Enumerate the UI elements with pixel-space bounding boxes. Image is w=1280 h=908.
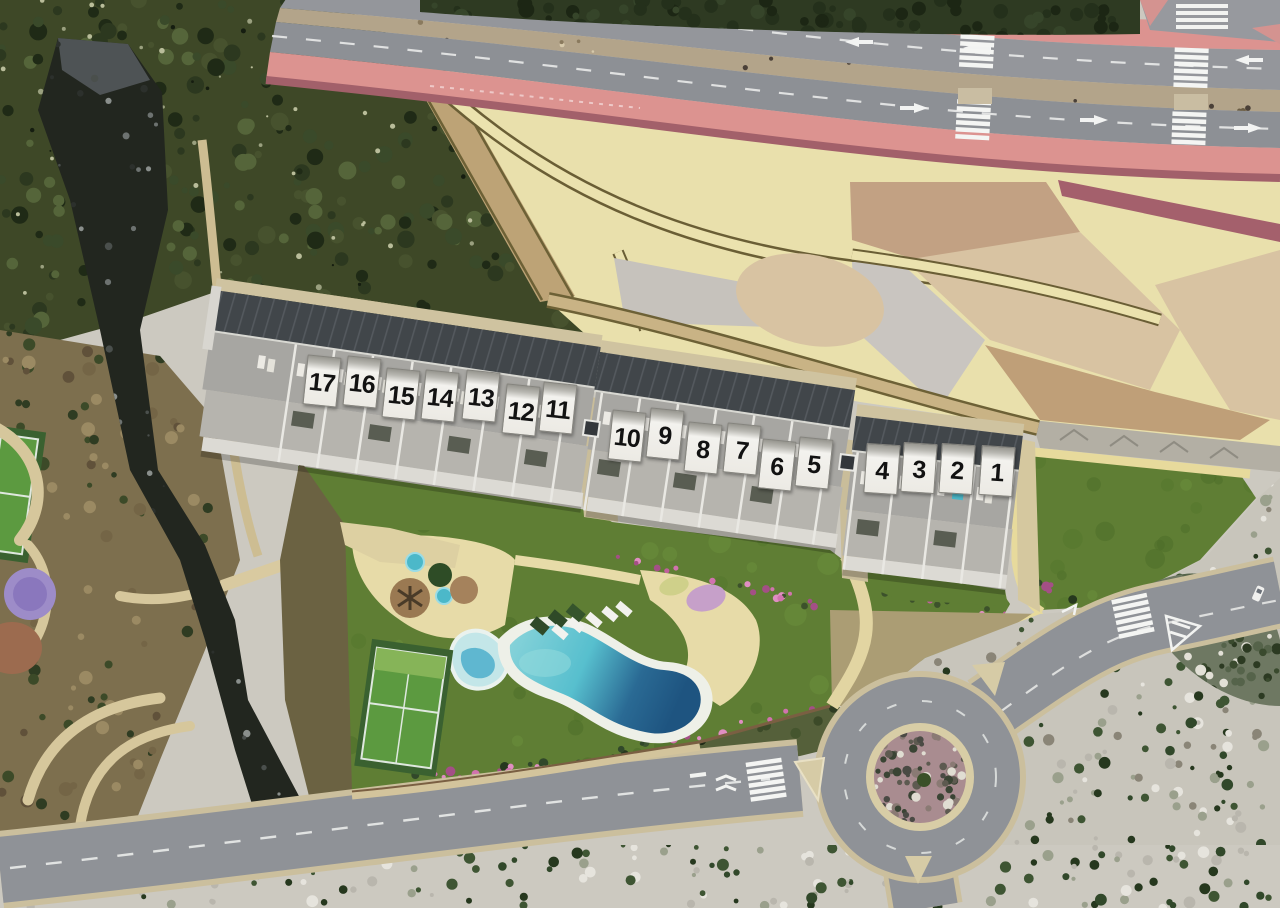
vegetation-dot — [189, 187, 199, 197]
vegetation-dot — [187, 76, 204, 93]
vegetation-dot — [50, 157, 54, 161]
vegetation-dot — [817, 553, 839, 575]
unit-plate-7[interactable]: 7 — [722, 422, 761, 475]
vegetation-dot — [339, 885, 348, 894]
vegetation-dot — [734, 899, 739, 904]
vegetation-dot — [875, 769, 880, 774]
vegetation-dot — [616, 555, 620, 559]
vegetation-dot — [258, 226, 276, 244]
vegetation-dot — [1260, 804, 1265, 809]
vegetation-dot — [1173, 802, 1181, 810]
vegetation-dot — [1265, 895, 1271, 901]
vegetation-dot — [672, 7, 679, 14]
vegetation-dot — [1031, 859, 1037, 865]
vegetation-dot — [1151, 784, 1159, 792]
vegetation-dot — [995, 884, 1006, 895]
vegetation-dot — [23, 291, 27, 295]
vegetation-dot — [1219, 679, 1228, 688]
vegetation-dot — [358, 283, 361, 286]
vegetation-dot — [303, 129, 317, 143]
vegetation-dot — [1219, 664, 1224, 669]
vegetation-dot — [63, 513, 70, 520]
vegetation-dot — [1100, 689, 1109, 698]
vegetation-dot — [147, 470, 153, 476]
unit-plate-17[interactable]: 17 — [302, 354, 341, 407]
vegetation-dot — [690, 859, 696, 865]
vegetation-dot — [626, 875, 636, 885]
vegetation-dot — [427, 260, 436, 269]
vegetation-dot — [738, 583, 743, 588]
vegetation-dot — [245, 241, 259, 255]
vegetation-dot — [94, 355, 103, 364]
vegetation-dot — [89, 453, 97, 461]
vegetation-dot — [70, 782, 77, 789]
vegetation-dot — [925, 805, 931, 811]
vegetation-dot — [230, 254, 242, 266]
vegetation-dot — [169, 261, 183, 275]
vegetation-dot — [1095, 894, 1107, 906]
vegetation-dot — [1143, 855, 1153, 865]
unit-plate-5[interactable]: 5 — [794, 436, 833, 489]
vegetation-dot — [512, 735, 523, 746]
vegetation-dot — [445, 228, 462, 245]
vegetation-dot — [1199, 883, 1210, 894]
vegetation-dot — [22, 356, 36, 370]
vegetation-dot — [1087, 477, 1101, 491]
vegetation-dot — [1259, 649, 1267, 657]
vegetation-dot — [88, 424, 95, 431]
unit-plate-11[interactable]: 11 — [538, 381, 577, 434]
vegetation-dot — [277, 792, 280, 795]
vegetation-dot — [131, 226, 136, 231]
vegetation-dot — [141, 641, 147, 647]
vegetation-dot — [1238, 848, 1244, 854]
vegetation-dot — [163, 485, 165, 487]
vegetation-dot — [709, 863, 714, 868]
unit-plate-2[interactable]: 2 — [938, 443, 975, 495]
vegetation-dot — [1247, 672, 1256, 681]
vegetation-dot — [1198, 846, 1210, 858]
vegetation-dot — [361, 223, 364, 226]
vegetation-dot — [224, 45, 241, 62]
vegetation-dot — [1095, 753, 1102, 760]
vegetation-dot — [934, 658, 942, 666]
vegetation-dot — [947, 767, 956, 776]
vegetation-dot — [388, 243, 393, 248]
vegetation-dot — [224, 182, 230, 188]
vegetation-dot — [63, 371, 75, 383]
vegetation-dot — [203, 503, 213, 513]
vegetation-dot — [191, 80, 194, 83]
vegetation-dot — [1128, 795, 1133, 800]
vegetation-dot — [897, 21, 904, 28]
vegetation-dot — [100, 4, 104, 8]
vegetation-dot — [77, 298, 85, 306]
vegetation-dot — [310, 249, 317, 256]
vegetation-dot — [747, 562, 758, 573]
vegetation-dot — [819, 14, 827, 22]
vegetation-dot — [427, 113, 434, 120]
vegetation-dot — [105, 661, 113, 669]
vegetation-dot — [174, 796, 184, 806]
unit-plate-8[interactable]: 8 — [683, 421, 722, 474]
vegetation-dot — [700, 890, 706, 896]
unit-plate-1[interactable]: 1 — [978, 445, 1015, 497]
vegetation-dot — [33, 54, 44, 65]
vegetation-dot — [416, 887, 421, 892]
vegetation-dot — [902, 766, 911, 775]
vegetation-dot — [1237, 667, 1245, 675]
vegetation-dot — [1025, 820, 1035, 830]
vegetation-dot — [430, 893, 434, 897]
vegetation-dot — [154, 123, 158, 127]
vegetation-dot — [640, 741, 644, 745]
vegetation-dot — [1245, 105, 1251, 111]
vegetation-dot — [149, 747, 157, 755]
vegetation-dot — [1180, 860, 1189, 869]
unit-plate-4[interactable]: 4 — [863, 443, 900, 495]
vegetation-dot — [1121, 885, 1132, 896]
vegetation-dot — [1057, 759, 1066, 768]
vegetation-dot — [285, 125, 291, 131]
vegetation-dot — [141, 894, 146, 899]
vegetation-dot — [909, 21, 920, 32]
vegetation-dot — [269, 505, 276, 512]
vegetation-dot — [1173, 705, 1177, 709]
vegetation-dot — [1165, 746, 1175, 756]
seating-circle-2 — [450, 576, 478, 604]
vegetation-dot — [1039, 723, 1043, 727]
vegetation-dot — [877, 777, 883, 783]
vegetation-dot — [139, 46, 143, 50]
vegetation-dot — [692, 873, 696, 877]
vegetation-dot — [1156, 723, 1166, 733]
vegetation-dot — [193, 52, 202, 61]
vegetation-dot — [816, 882, 827, 893]
vegetation-dot — [1024, 736, 1035, 747]
vegetation-dot — [757, 847, 764, 854]
vegetation-dot — [33, 17, 44, 28]
vegetation-dot — [35, 231, 43, 239]
vegetation-dot — [2, 209, 11, 218]
vegetation-dot — [1000, 861, 1011, 872]
vegetation-dot — [1198, 812, 1207, 821]
vegetation-dot — [801, 603, 808, 610]
vegetation-dot — [1073, 790, 1077, 794]
vegetation-dot — [520, 893, 528, 901]
vegetation-dot — [62, 27, 66, 31]
vegetation-dot — [884, 796, 890, 802]
vegetation-dot — [189, 328, 201, 340]
vegetation-dot — [777, 595, 783, 601]
vegetation-dot — [957, 771, 966, 780]
vegetation-dot — [577, 40, 581, 44]
vegetation-dot — [159, 48, 165, 54]
vegetation-dot — [241, 28, 246, 33]
vegetation-dot — [790, 728, 801, 739]
vegetation-dot — [709, 578, 715, 584]
vegetation-dot — [697, 736, 701, 740]
vegetation-dot — [16, 212, 20, 216]
vegetation-dot — [1136, 694, 1141, 699]
vegetation-dot — [160, 15, 170, 25]
vegetation-dot — [50, 75, 54, 79]
vegetation-dot — [694, 845, 699, 850]
vegetation-dot — [512, 857, 518, 863]
vegetation-dot — [296, 168, 302, 174]
unit-plate-12[interactable]: 12 — [501, 383, 540, 436]
vegetation-dot — [89, 435, 99, 445]
unit-plate-13[interactable]: 13 — [461, 369, 500, 422]
vegetation-dot — [1090, 860, 1100, 870]
jacuzzi-2 — [436, 588, 452, 604]
vegetation-dot — [1019, 627, 1024, 632]
vegetation-dot — [739, 720, 743, 724]
vegetation-dot — [942, 780, 949, 787]
vegetation-dot — [151, 784, 157, 790]
vegetation-dot — [762, 585, 770, 593]
vegetation-dot — [1032, 12, 1044, 24]
vegetation-dot — [1231, 678, 1239, 686]
vegetation-dot — [1068, 595, 1077, 604]
vegetation-dot — [367, 876, 377, 886]
vegetation-dot — [87, 34, 92, 39]
vegetation-dot — [9, 324, 15, 330]
vegetation-dot — [1028, 898, 1038, 908]
unit-plate-15[interactable]: 15 — [381, 367, 420, 420]
vegetation-dot — [1222, 742, 1232, 752]
vegetation-dot — [259, 714, 266, 721]
vegetation-dot — [53, 205, 64, 216]
vegetation-dot — [1184, 742, 1191, 749]
vegetation-dot — [408, 889, 416, 897]
vegetation-dot — [744, 581, 750, 587]
vegetation-dot — [44, 177, 55, 188]
vegetation-dot — [1128, 836, 1136, 844]
vegetation-dot — [134, 769, 145, 780]
unit-plate-10[interactable]: 10 — [607, 409, 646, 462]
vegetation-dot — [441, 195, 453, 207]
vegetation-dot — [492, 252, 500, 260]
vegetation-dot — [750, 589, 756, 595]
unit-plate-6[interactable]: 6 — [757, 438, 796, 491]
vegetation-dot — [350, 886, 356, 892]
vegetation-dot — [1166, 899, 1172, 905]
vegetation-dot — [1145, 549, 1165, 569]
vegetation-dot — [506, 879, 514, 887]
vegetation-dot — [258, 678, 260, 680]
vegetation-dot — [89, 337, 97, 345]
vegetation-dot — [1165, 758, 1176, 769]
vegetation-dot — [26, 140, 33, 147]
vegetation-dot — [498, 862, 507, 871]
vegetation-dot — [223, 238, 236, 251]
building-block-c — [837, 404, 1025, 595]
vegetation-dot — [399, 216, 411, 228]
vegetation-dot — [1191, 502, 1203, 514]
vegetation-dot — [1256, 892, 1264, 900]
vegetation-dot — [1194, 691, 1203, 700]
vegetation-dot — [401, 139, 410, 148]
vegetation-dot — [432, 126, 438, 132]
vegetation-dot — [1206, 672, 1214, 680]
vegetation-dot — [39, 714, 45, 720]
vegetation-dot — [1114, 732, 1122, 740]
vegetation-dot — [208, 708, 221, 721]
vegetation-dot — [40, 265, 44, 269]
vegetation-dot — [946, 786, 953, 793]
vegetation-dot — [993, 4, 1008, 19]
vegetation-dot — [221, 743, 224, 746]
vegetation-dot — [335, 252, 349, 266]
vegetation-dot — [432, 3, 438, 9]
vegetation-dot — [1214, 476, 1223, 485]
vegetation-dot — [1268, 495, 1273, 500]
vegetation-dot — [1185, 693, 1196, 704]
vegetation-dot — [654, 565, 661, 572]
unit-plate-9[interactable]: 9 — [645, 407, 684, 460]
vegetation-dot — [783, 709, 788, 714]
vegetation-dot — [836, 21, 843, 28]
vegetation-dot — [1180, 479, 1192, 491]
vegetation-dot — [505, 262, 515, 272]
vegetation-dot — [660, 848, 668, 856]
gate-marker-ab — [583, 420, 600, 437]
vegetation-dot — [279, 233, 289, 243]
vegetation-dot — [404, 111, 417, 124]
vegetation-dot — [482, 261, 491, 270]
vegetation-dot — [206, 87, 210, 91]
vegetation-dot — [621, 843, 626, 848]
vegetation-dot — [1173, 856, 1179, 862]
vegetation-dot — [192, 141, 196, 145]
vegetation-dot — [1189, 802, 1197, 810]
vegetation-dot — [198, 730, 206, 738]
vegetation-dot — [251, 66, 253, 68]
vegetation-dot — [176, 3, 183, 10]
vegetation-dot — [218, 0, 227, 9]
vegetation-dot — [910, 817, 915, 822]
vegetation-dot — [331, 236, 335, 240]
vegetation-dot — [810, 675, 829, 694]
vegetation-dot — [23, 338, 35, 350]
vegetation-dot — [751, 5, 765, 19]
vegetation-dot — [173, 220, 185, 232]
vegetation-dot — [23, 368, 30, 375]
vegetation-dot — [813, 2, 826, 15]
vegetation-dot — [548, 857, 559, 868]
vegetation-dot — [1082, 902, 1088, 908]
vegetation-dot — [767, 6, 777, 16]
vegetation-dot — [211, 651, 214, 654]
vegetation-dot — [1098, 718, 1107, 727]
vegetation-dot — [363, 111, 367, 115]
vegetation-dot — [468, 218, 472, 222]
vegetation-dot — [829, 5, 836, 12]
vegetation-dot — [903, 812, 909, 818]
vegetation-dot — [187, 366, 198, 377]
vegetation-dot — [837, 878, 846, 887]
vegetation-dot — [751, 702, 763, 714]
vegetation-dot — [193, 736, 196, 739]
vegetation-dot — [1274, 668, 1279, 673]
vegetation-dot — [1181, 524, 1190, 533]
vegetation-dot — [71, 685, 76, 690]
vegetation-dot — [1169, 790, 1178, 799]
vegetation-dot — [123, 132, 130, 139]
vegetation-dot — [813, 716, 822, 725]
vegetation-dot — [1141, 794, 1149, 802]
vegetation-dot — [152, 347, 156, 351]
vegetation-dot — [1078, 815, 1086, 823]
vegetation-dot — [464, 852, 475, 863]
vegetation-dot — [488, 266, 504, 282]
vegetation-dot — [634, 3, 647, 16]
vegetation-dot — [513, 687, 525, 699]
vegetation-dot — [190, 231, 199, 240]
vegetation-dot — [359, 161, 371, 173]
vegetation-dot — [1265, 548, 1272, 555]
unit-plate-14[interactable]: 14 — [420, 369, 459, 422]
vegetation-dot — [909, 740, 914, 745]
unit-plate-3[interactable]: 3 — [900, 442, 937, 494]
vegetation-dot — [883, 8, 896, 21]
unit-plate-16[interactable]: 16 — [342, 355, 381, 408]
vegetation-dot — [87, 460, 96, 469]
vegetation-dot — [53, 6, 62, 15]
vegetation-dot — [241, 101, 249, 109]
vegetation-dot — [1214, 805, 1220, 811]
vegetation-dot — [30, 128, 34, 132]
vegetation-dot — [306, 895, 318, 907]
vegetation-dot — [1251, 531, 1258, 538]
vegetation-dot — [307, 149, 323, 165]
vegetation-dot — [926, 762, 930, 766]
vegetation-dot — [330, 229, 344, 243]
vegetation-dot — [397, 231, 414, 248]
vegetation-dot — [368, 228, 375, 235]
vegetation-dot — [1046, 816, 1054, 824]
vegetation-dot — [1227, 765, 1232, 770]
vegetation-dot — [1253, 661, 1260, 668]
vegetation-dot — [1074, 763, 1084, 773]
vegetation-dot — [255, 588, 261, 594]
vegetation-dot — [1269, 482, 1273, 486]
vegetation-dot — [678, 7, 692, 21]
vegetation-dot — [156, 784, 158, 786]
vegetation-dot — [251, 880, 257, 886]
vegetation-dot — [91, 75, 98, 82]
vegetation-dot — [1051, 5, 1061, 15]
vegetation-dot — [49, 150, 51, 152]
vegetation-dot — [182, 187, 188, 193]
vegetation-dot — [167, 243, 176, 252]
vegetation-dot — [1216, 699, 1225, 708]
vegetation-dot — [189, 328, 194, 333]
vegetation-dot — [572, 13, 579, 20]
vegetation-dot — [1218, 651, 1223, 656]
vegetation-dot — [106, 345, 113, 352]
vegetation-dot — [261, 765, 266, 770]
vegetation-dot — [36, 798, 47, 809]
vegetation-dot — [1224, 878, 1233, 887]
vegetation-dot — [105, 279, 111, 285]
roundabout — [814, 671, 1026, 883]
vegetation-dot — [153, 714, 160, 721]
vegetation-dot — [46, 293, 54, 301]
vegetation-dot — [174, 128, 185, 139]
vegetation-dot — [380, 214, 395, 229]
